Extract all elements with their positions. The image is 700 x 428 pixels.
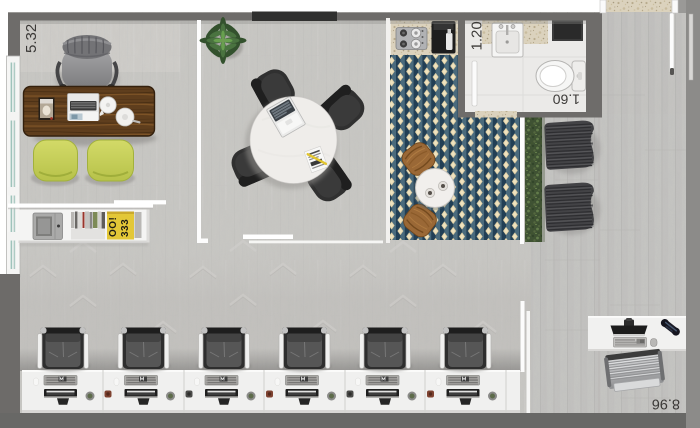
svg-text:1.60: 1.60 [553,92,580,108]
svg-text:8.96: 8.96 [652,396,680,412]
svg-text:333: 333 [120,219,131,237]
svg-text:OO!: OO! [108,217,119,237]
svg-text:1.20: 1.20 [469,21,486,50]
svg-text:5.32: 5.32 [23,24,40,53]
